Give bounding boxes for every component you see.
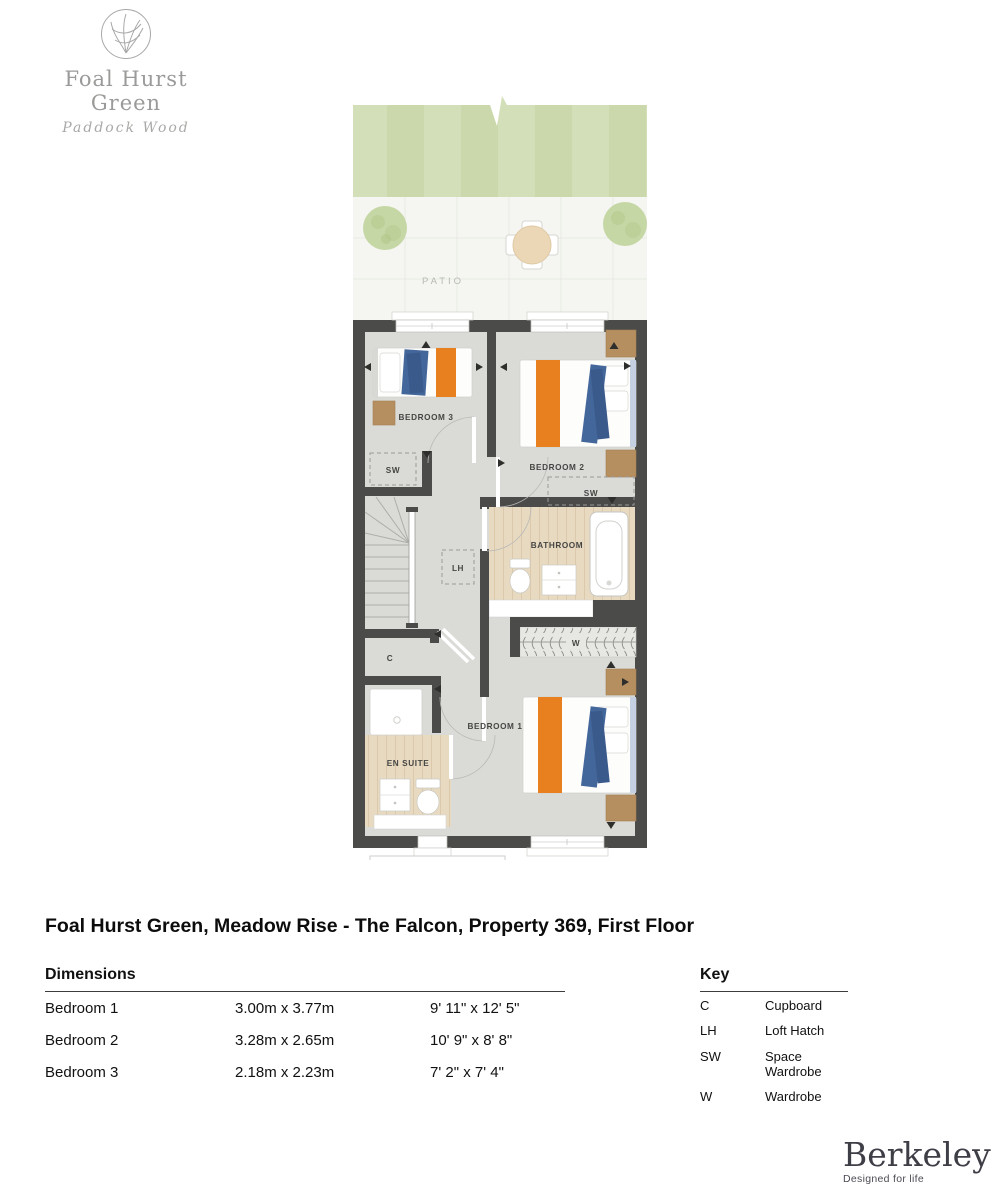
bedside-unit-bedroom3 [373, 401, 395, 425]
key-abbr: LH [700, 1023, 765, 1038]
development-name: Foal Hurst Green [45, 67, 207, 115]
key-label: Loft Hatch [765, 1023, 848, 1038]
room-imperial: 7' 2" x 7' 4" [430, 1064, 565, 1081]
bedside-unit-bedroom1-top [606, 669, 636, 695]
brand-name: Berkeley [843, 1138, 991, 1171]
patio-label: PATIO [422, 276, 464, 287]
room-name: Bedroom 1 [45, 1000, 235, 1017]
key-abbr: W [700, 1089, 765, 1104]
room-imperial: 9' 11" x 12' 5" [430, 1000, 565, 1017]
bedroom3-label: BEDROOM 3 [399, 413, 454, 422]
house: BEDROOM 3 BEDROOM 2 BEDROOM 1 BATHROOM E… [353, 312, 647, 860]
key-abbr: SW [700, 1049, 765, 1079]
bush-left [363, 206, 407, 250]
bedside-unit-bedroom2-bottom [606, 450, 636, 477]
shower-tray [370, 689, 422, 735]
window-bedroom3 [392, 312, 473, 332]
toilet-ensuite [416, 779, 440, 814]
ensuite-label: EN SUITE [387, 759, 430, 768]
room-metric: 3.00m x 3.77m [235, 1000, 430, 1017]
bed-double-bedroom2 [520, 360, 636, 447]
window-bedroom1 [527, 836, 608, 856]
leaf-emblem-icon [100, 8, 152, 60]
dimensions-heading: Dimensions [45, 966, 565, 992]
room-imperial: 10' 9" x 8' 8" [430, 1032, 565, 1049]
bush-right [603, 202, 647, 246]
development-location: Paddock Wood [45, 120, 207, 136]
floor-plan: PATIO [350, 95, 660, 860]
dimensions-table: Dimensions Bedroom 1 3.00m x 3.77m 9' 11… [45, 966, 565, 1088]
airing-shelf [489, 600, 593, 617]
bedside-unit-bedroom1-bottom [606, 795, 636, 821]
vanity-ensuite [380, 779, 410, 811]
cupboard-label: C [387, 654, 394, 663]
loft-hatch-label: LH [452, 564, 464, 573]
vanity-bathroom [542, 565, 576, 595]
bathroom-label: BATHROOM [531, 541, 583, 550]
floorplan-page: Foal Hurst Green Paddock Wood [0, 0, 1000, 1200]
bedroom1-label: BEDROOM 1 [468, 722, 523, 731]
bathtub [590, 512, 628, 596]
list-item: C Cupboard [700, 992, 848, 1018]
list-item: SW Space Wardrobe [700, 1043, 848, 1084]
ensuite-counter [374, 815, 446, 829]
berkeley-logo: Berkeley Designed for life [843, 1138, 991, 1185]
room-name: Bedroom 3 [45, 1064, 235, 1081]
bedside-unit-bedroom2-top [606, 330, 636, 357]
key-label: Space Wardrobe [765, 1049, 848, 1079]
plan-title: Foal Hurst Green, Meadow Rise - The Falc… [45, 915, 694, 938]
room-metric: 3.28m x 2.65m [235, 1032, 430, 1049]
table-row: Bedroom 3 2.18m x 2.23m 7' 2" x 7' 4" [45, 1056, 565, 1088]
room-metric: 2.18m x 2.23m [235, 1064, 430, 1081]
table-row: Bedroom 1 3.00m x 3.77m 9' 11" x 12' 5" [45, 992, 565, 1024]
lawn [353, 96, 647, 197]
table-row: Bedroom 2 3.28m x 2.65m 10' 9" x 8' 8" [45, 1024, 565, 1056]
banister [409, 510, 415, 626]
space-wardrobe-bedroom2-label: SW [584, 489, 598, 498]
key-abbr: C [700, 998, 765, 1013]
lower-level-outline [370, 856, 505, 860]
key-heading: Key [700, 966, 848, 992]
window-ensuite [414, 836, 451, 856]
space-wardrobe-bedroom3-label: SW [386, 466, 400, 475]
key-label: Wardrobe [765, 1089, 848, 1104]
window-bedroom2 [527, 312, 608, 332]
brand-tagline: Designed for life [843, 1173, 991, 1185]
wardrobe-label: W [572, 639, 580, 648]
key-label: Cupboard [765, 998, 848, 1013]
bedroom2-label: BEDROOM 2 [530, 463, 585, 472]
key-legend: Key C Cupboard LH Loft Hatch SW Space Wa… [700, 966, 848, 1109]
bed-single-bedroom3 [373, 348, 472, 397]
bed-double-bedroom1 [523, 697, 636, 793]
list-item: LH Loft Hatch [700, 1018, 848, 1044]
development-logo: Foal Hurst Green Paddock Wood [45, 8, 207, 136]
garden: PATIO [353, 96, 647, 320]
toilet-bathroom [510, 559, 530, 593]
list-item: W Wardrobe [700, 1084, 848, 1110]
room-name: Bedroom 2 [45, 1032, 235, 1049]
